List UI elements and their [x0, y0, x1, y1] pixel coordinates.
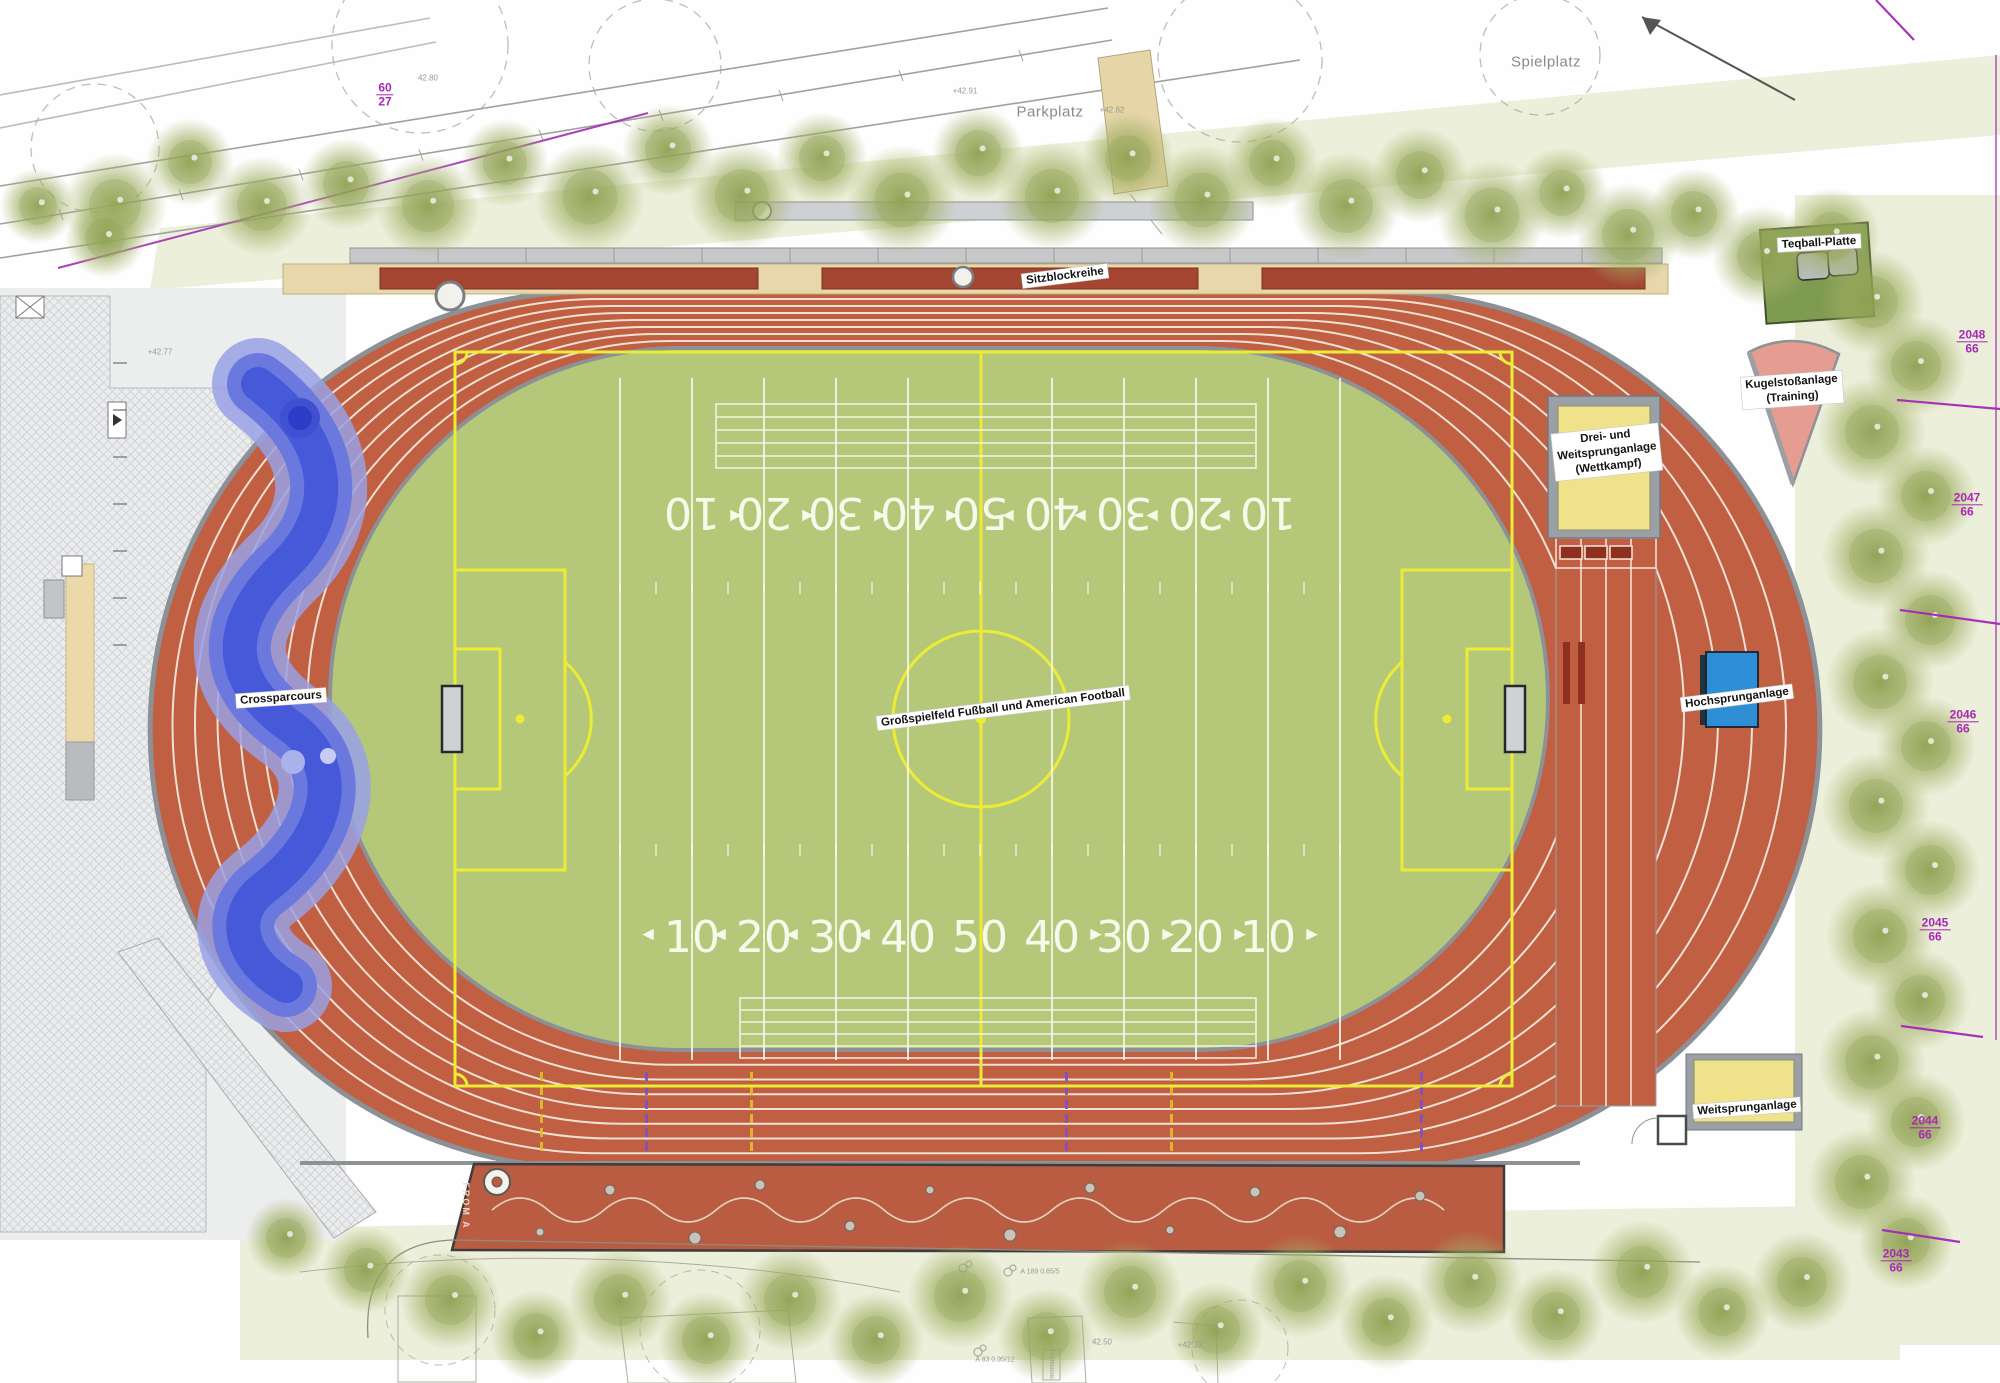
svg-text:◄: ◄ [855, 924, 874, 945]
infield [330, 348, 1548, 1050]
tree-survey-tag: A 83 0.95/12 [975, 1357, 1014, 1364]
svg-text:◄: ◄ [783, 924, 802, 945]
svg-text:20: 20 [736, 487, 792, 538]
gray-structure [66, 742, 94, 800]
tree-survey-tag: A 189 0.65/5 [1020, 1269, 1059, 1276]
takeoff-boards [1560, 546, 1632, 559]
elevation-mark: +42.77 [148, 348, 173, 357]
svg-text:30: 30 [1096, 912, 1152, 963]
play-strip [300, 1163, 1580, 1252]
svg-text:40: 40 [1024, 912, 1080, 963]
svg-text:10: 10 [1240, 912, 1296, 963]
elevation-mark: +42.82 [1100, 106, 1125, 115]
parcel-number: 204666 [1948, 708, 1979, 735]
svg-text:10: 10 [664, 487, 720, 538]
elevation-mark: +42.91 [953, 87, 978, 96]
elevation-mark: 42.80 [418, 74, 438, 83]
seat-blocks [380, 268, 1645, 289]
svg-text:10: 10 [1240, 487, 1296, 538]
parcel-number: 204866 [1957, 328, 1988, 355]
elevation-mark: +42.33 [1178, 1341, 1203, 1350]
svg-text:30: 30 [808, 487, 864, 538]
svg-text:►: ► [1143, 505, 1162, 526]
manhole [436, 282, 464, 310]
parcel-number: 204466 [1910, 1114, 1941, 1141]
sign-symbol [62, 556, 82, 576]
tan-strip [66, 564, 94, 742]
label-from-a: FROM A [461, 1182, 471, 1229]
elevation-mark: 42.50 [1092, 1338, 1112, 1347]
svg-text:40: 40 [880, 912, 936, 963]
label-tischtennis: Tischtennis [1048, 1349, 1054, 1379]
parcel-number: 6027 [376, 81, 393, 108]
svg-text:►: ► [1215, 505, 1234, 526]
jump-runways [1556, 538, 1656, 1106]
sports-site-plan: 10◄20◄30◄40◄5040►30►20►10►10◄20◄30◄40◄50… [0, 0, 2000, 1383]
svg-text:50: 50 [952, 912, 1008, 963]
svg-text:►: ► [999, 505, 1018, 526]
label-parkplatz: Parkplatz [1016, 104, 1083, 121]
svg-text:►: ► [1303, 924, 1322, 945]
label-spielplatz: Spielplatz [1511, 54, 1581, 71]
parcel-number: 204366 [1881, 1247, 1912, 1274]
manhole [953, 267, 973, 287]
parcel-number: 204566 [1920, 916, 1951, 943]
svg-text:◄: ◄ [711, 924, 730, 945]
svg-text:40: 40 [880, 487, 936, 538]
svg-text:20: 20 [1168, 912, 1224, 963]
svg-text:►: ► [1071, 505, 1090, 526]
svg-text:◄: ◄ [639, 924, 658, 945]
parcel-number: 204766 [1952, 491, 1983, 518]
